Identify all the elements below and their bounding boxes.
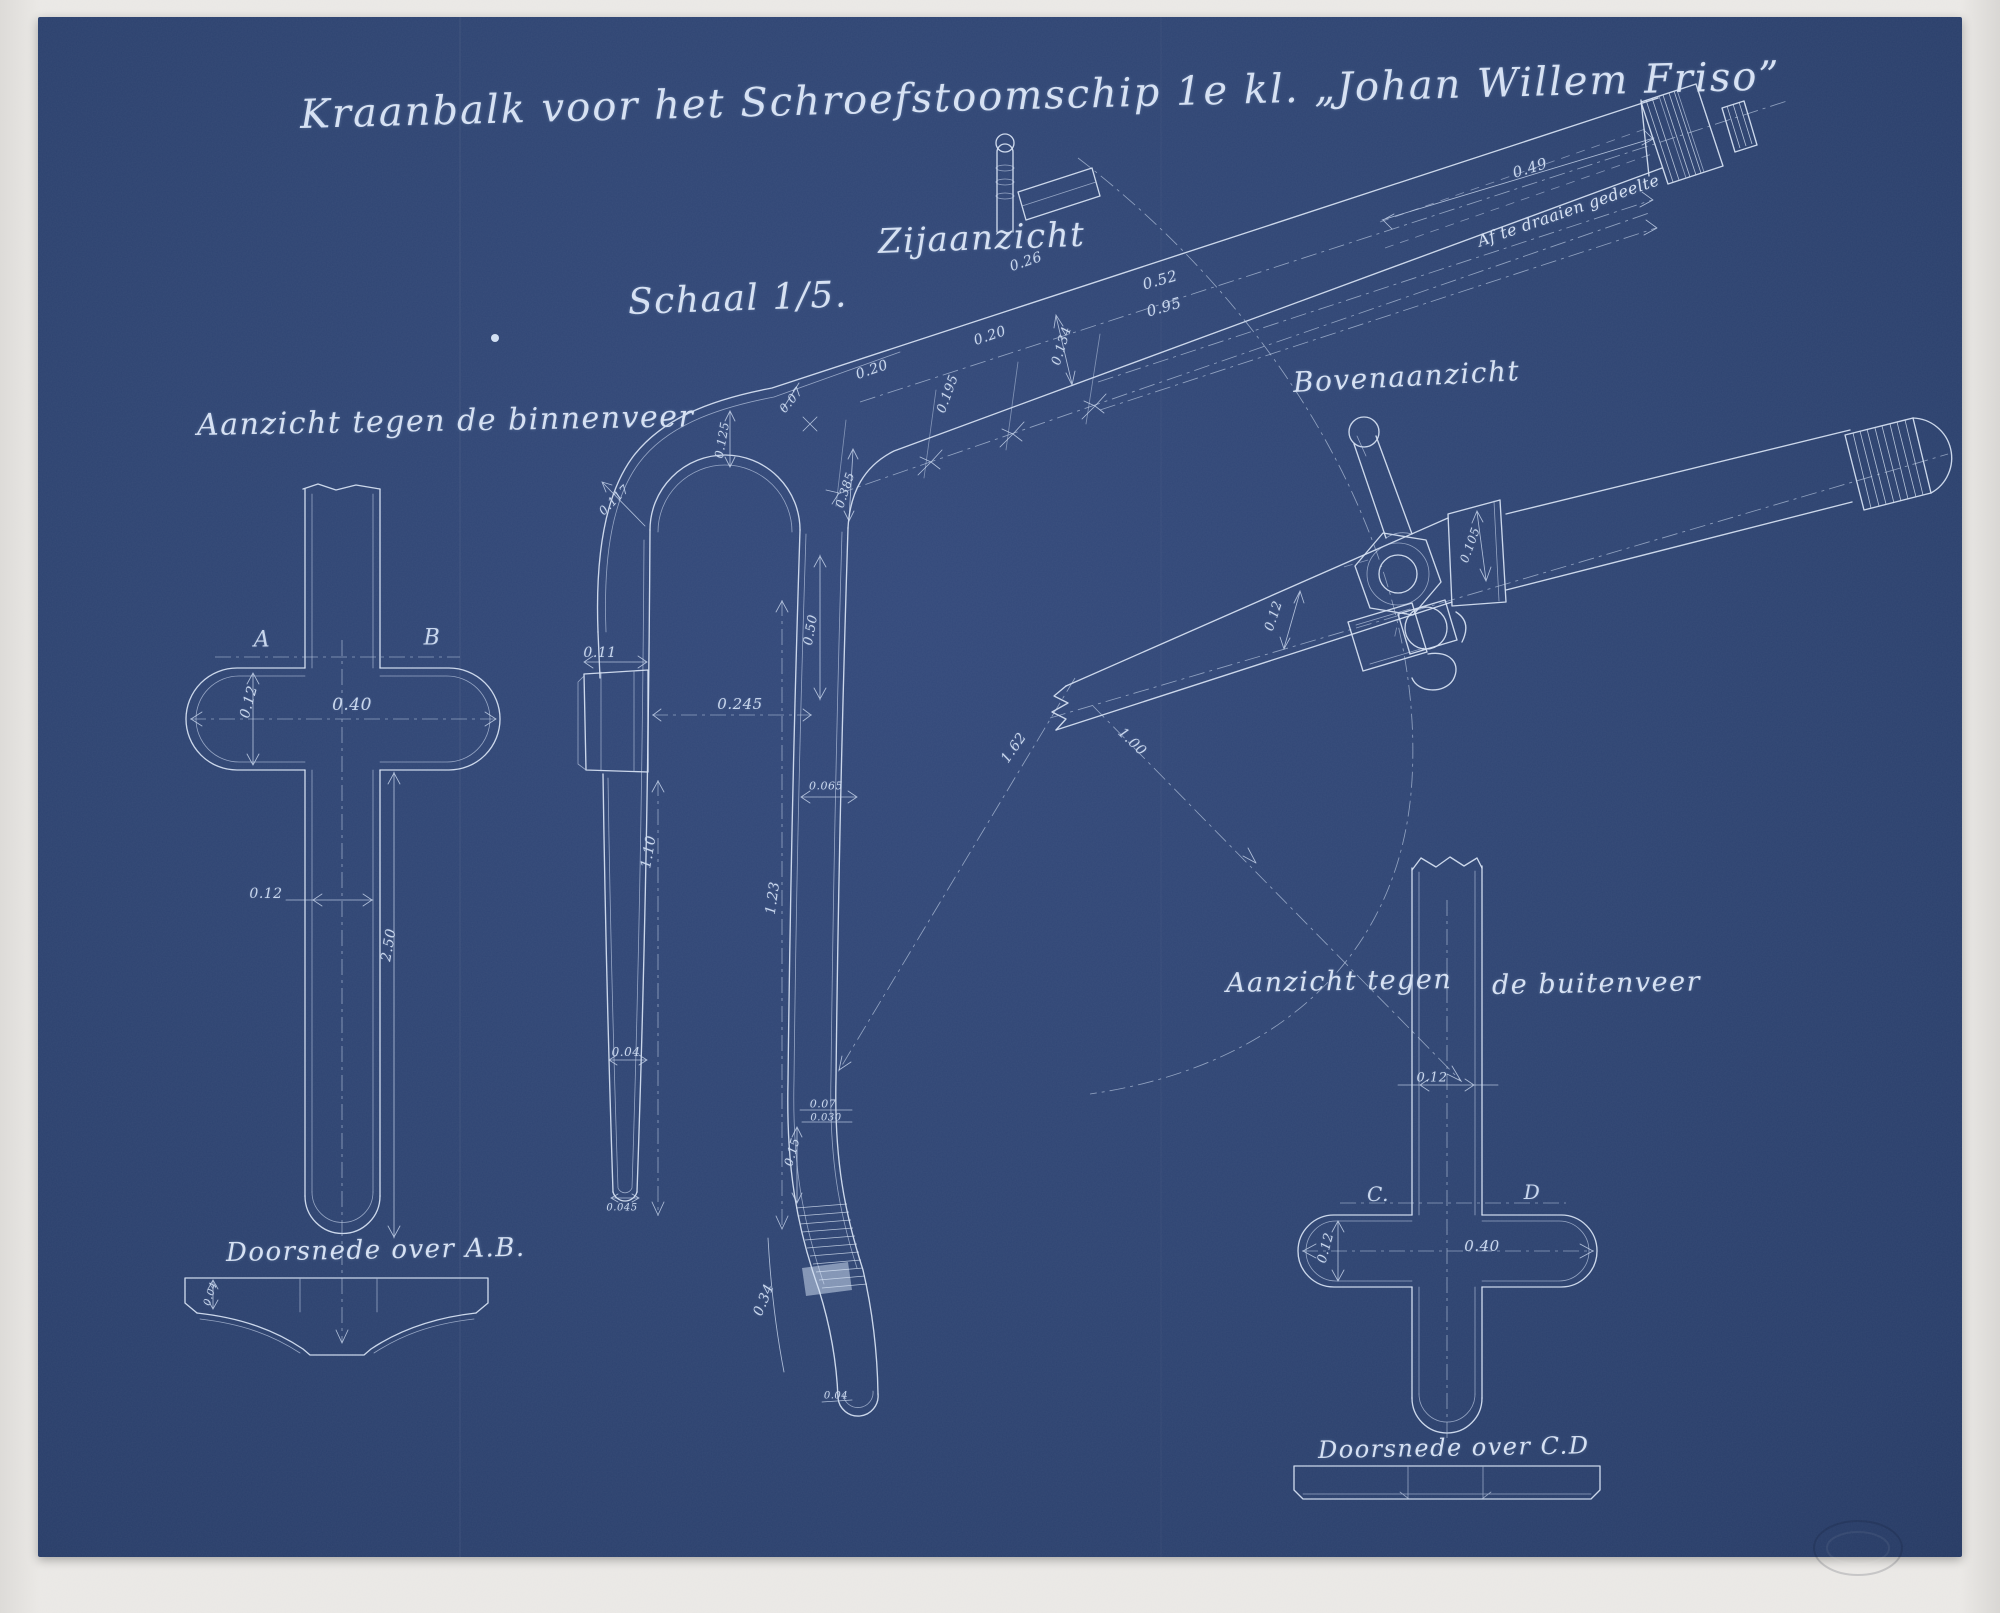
- label-view-outer-spring-part2: de buitenveer: [1492, 966, 1702, 1001]
- label-section-ab: Doorsnede over A.B.: [226, 1233, 526, 1268]
- paper-speck: [491, 334, 499, 342]
- label-side-view: Zijaanzicht: [877, 215, 1086, 262]
- label-section-cd: Doorsnede over C.D: [1318, 1431, 1590, 1464]
- blueprint-page: Kraanbalk voor het Schroefstoomschip 1e …: [0, 0, 2000, 1613]
- label-scale: Schaal 1/5.: [627, 274, 848, 323]
- label-view-outer-spring-part1: Aanzicht tegen: [1226, 964, 1453, 999]
